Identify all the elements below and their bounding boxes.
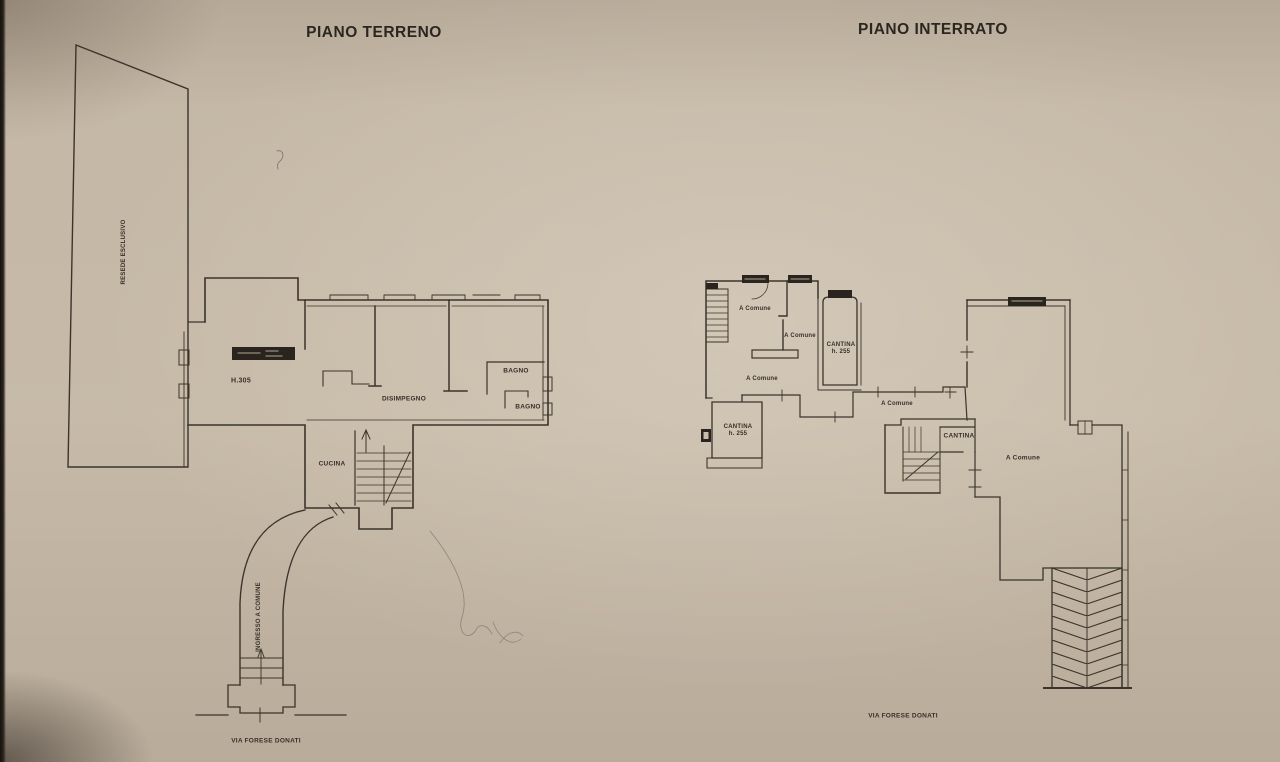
interrato-title: PIANO INTERRATO	[858, 21, 1008, 39]
terreno-label-disimpegno: DISIMPEGNO	[382, 396, 426, 403]
cantina-right-height: h. 255	[827, 349, 856, 356]
interrato-label-a-comune-large: A Comune	[1006, 455, 1040, 462]
interrato-label-a-comune-corridor: A Comune	[881, 401, 913, 407]
interrato-label-a-comune-low: A Comune	[746, 376, 778, 382]
terreno-plan-lines	[68, 45, 552, 722]
terreno-label-resede-esclusivo: RESEDE ESCLUSIVO	[121, 219, 127, 284]
floor-plan-drawing	[0, 0, 1280, 762]
interrato-label-a-comune-top: A Comune	[739, 306, 771, 312]
floor-plan-sheet: PIANO TERRENO PIANO INTERRATO RESEDE ESC…	[0, 0, 1280, 762]
cantina-right-name: CANTINA	[827, 342, 856, 349]
cantina-left-name: CANTINA	[724, 424, 753, 431]
interrato-label-a-comune-mid: A Comune	[784, 333, 816, 339]
interrato-label-via-forese-donati: VIA FORESE DONATI	[868, 713, 938, 720]
interrato-label-cantina-right: CANTINA h. 255	[827, 342, 856, 356]
terreno-label-cucina: CUCINA	[319, 461, 346, 468]
interrato-label-cantina-mid: CANTINA	[944, 433, 975, 440]
interrato-label-cantina-left: CANTINA h. 255	[724, 424, 753, 438]
terreno-label-bagno-top: BAGNO	[503, 368, 528, 375]
terreno-label-ingresso-a-comune: INGRESSO A COMUNE	[256, 582, 262, 652]
interrato-plan-lines	[701, 275, 1131, 688]
cantina-left-height: h. 255	[724, 431, 753, 438]
terreno-label-bagno-bottom: BAGNO	[515, 404, 540, 411]
terreno-label-h305: H.305	[231, 378, 251, 385]
terreno-title: PIANO TERRENO	[306, 24, 442, 42]
terreno-label-via-forese-donati: VIA FORESE DONATI	[231, 738, 301, 745]
